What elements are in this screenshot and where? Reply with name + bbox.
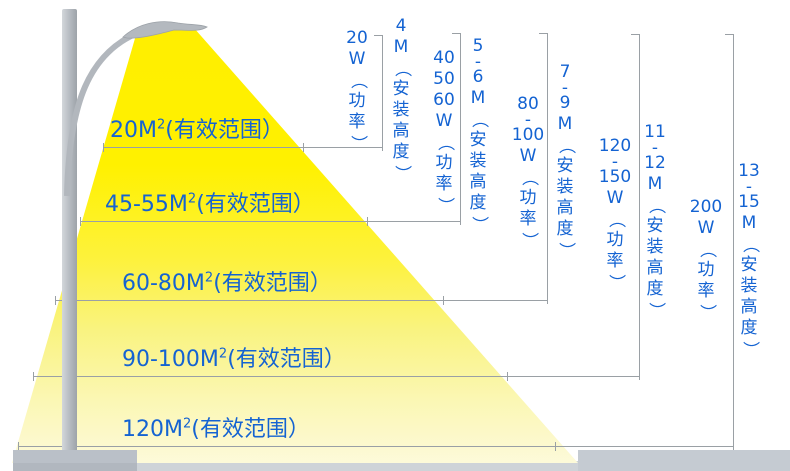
lamp-base-step	[13, 463, 137, 471]
power-label: 120-150W（功率）	[601, 136, 629, 293]
power-label: 80-100W（功率）	[514, 94, 542, 251]
bracket-top-tick	[452, 33, 460, 34]
line-start-tick	[103, 143, 104, 152]
line-start-tick	[18, 442, 19, 451]
measure-bracket	[460, 33, 461, 225]
coverage-line	[55, 300, 547, 301]
measure-bracket	[547, 33, 548, 304]
cone-edge-tick	[367, 217, 368, 226]
coverage-label: 60-80M2(有效范围）	[122, 271, 332, 297]
measure-bracket	[382, 35, 383, 151]
power-label: 200W（功率）	[692, 197, 720, 323]
bracket-top-tick	[631, 34, 639, 35]
coverage-label: 120M2(有效范围）	[122, 417, 310, 443]
cone-edge-tick	[443, 296, 444, 305]
street-light-coverage-diagram: 20M2(有效范围） 20W（功率） 4M（安装高度） 45-55M2(有效范围…	[0, 0, 790, 471]
line-start-tick	[33, 372, 34, 381]
coverage-line	[33, 376, 639, 377]
line-start-tick	[80, 217, 81, 226]
ground-bar	[578, 450, 790, 471]
height-label: 5-6M（安装高度）	[464, 36, 492, 235]
bracket-top-tick	[539, 33, 547, 34]
power-label: 20W（功率）	[343, 28, 371, 154]
bracket-top-tick	[374, 35, 382, 36]
bracket-top-tick	[725, 34, 733, 35]
height-label: 11-12M（安装高度）	[641, 122, 669, 321]
coverage-label: 20M2(有效范围）	[110, 118, 284, 144]
cone-edge-tick	[507, 372, 508, 381]
measure-bracket	[639, 34, 640, 380]
height-label: 7-9M（安装高度）	[551, 62, 579, 261]
coverage-line	[103, 147, 382, 148]
power-label: 405060W（功率）	[430, 48, 458, 216]
cone-edge-tick	[303, 143, 304, 152]
measure-bracket	[733, 34, 734, 450]
cone-edge-tick	[555, 442, 556, 451]
line-start-tick	[55, 296, 56, 305]
coverage-line	[18, 446, 733, 447]
coverage-label: 45-55M2(有效范围）	[105, 192, 315, 218]
coverage-label: 90-100M2(有效范围）	[122, 347, 346, 373]
height-label: 13-15M（安装高度）	[735, 161, 763, 360]
coverage-line	[80, 221, 460, 222]
height-label: 4M（安装高度）	[387, 16, 415, 184]
